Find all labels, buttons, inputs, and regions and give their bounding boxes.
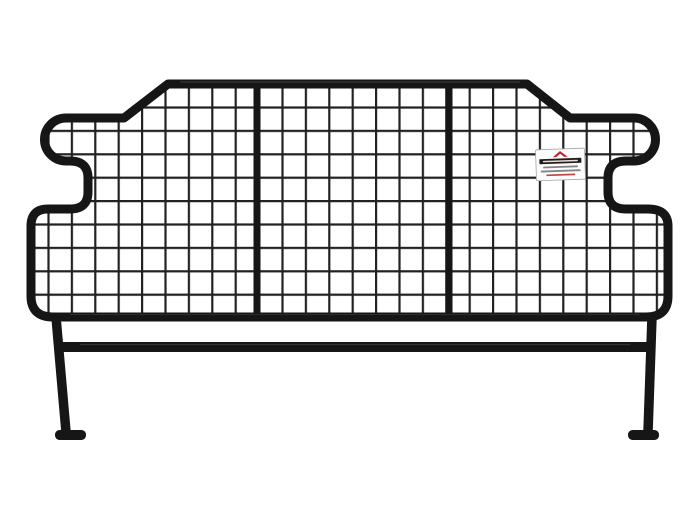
- dog-guard-image: [0, 0, 700, 525]
- product-photo: [0, 0, 700, 525]
- brand-label: [535, 148, 585, 181]
- support-leg-right: [648, 317, 652, 432]
- foot-pad-right: [628, 430, 659, 440]
- foot-pad-left: [55, 430, 86, 440]
